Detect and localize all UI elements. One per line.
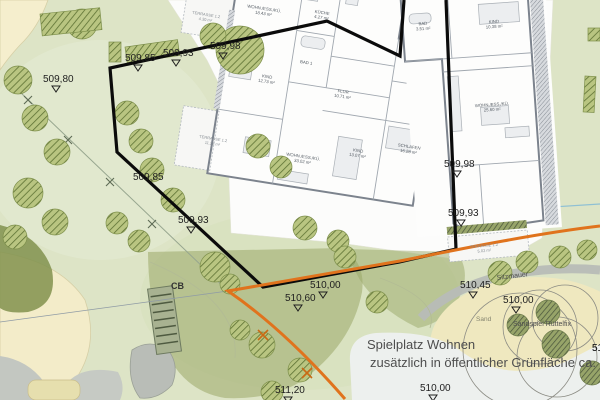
elevation-marker: 509,85 — [133, 172, 164, 183]
svg-text:509,85: 509,85 — [125, 53, 156, 64]
tree-icon — [288, 358, 312, 382]
svg-text:509,85: 509,85 — [133, 172, 164, 183]
site-plan: WOHN./ESS./KÜ.18.43 m²KÜCHE4.27 m²KIND12… — [0, 0, 600, 400]
svg-text:509,80: 509,80 — [43, 74, 74, 85]
svg-text:509,93: 509,93 — [448, 208, 479, 219]
tree-icon — [115, 101, 139, 125]
svg-text:509,93: 509,93 — [163, 48, 194, 59]
tree-icon — [4, 66, 32, 94]
tree-icon — [334, 246, 356, 268]
hedge-icon — [109, 42, 121, 62]
tree-icon — [22, 105, 48, 131]
hedge-icon — [583, 76, 596, 113]
site-plan-canvas: WOHN./ESS./KÜ.18.43 m²KÜCHE4.27 m²KIND12… — [0, 0, 600, 400]
playground-label-line1: Spielplatz Wohnen — [367, 337, 475, 352]
terrace-3 — [447, 220, 530, 262]
playground-label-line2: zusätzlich in öffentlicher Grünfläche ca… — [370, 355, 596, 370]
tree-icon — [161, 188, 185, 212]
floorplan-right-wing — [400, 0, 562, 237]
svg-text:511,20: 511,20 — [275, 385, 305, 396]
tree-icon — [128, 230, 150, 252]
tree-icon — [577, 240, 597, 260]
tree-icon — [129, 129, 153, 153]
svg-text:510,60: 510,60 — [285, 293, 316, 304]
play-structure — [28, 380, 80, 400]
tree-icon — [13, 178, 43, 208]
tree-icon — [42, 209, 68, 235]
sand-play-label: Sandspiel Rüttelfix — [513, 321, 571, 328]
svg-text:510,00: 510,00 — [310, 280, 341, 291]
tree-icon — [246, 134, 270, 158]
tree-icon — [366, 291, 388, 313]
tree-icon — [44, 139, 70, 165]
svg-text:509,98: 509,98 — [444, 159, 475, 170]
svg-text:510,45: 510,45 — [460, 280, 491, 291]
svg-text:510,00: 510,00 — [420, 383, 451, 394]
svg-text:509,93: 509,93 — [178, 215, 209, 226]
tree-icon — [3, 225, 27, 249]
tree-icon — [106, 212, 128, 234]
cb-label: CB — [171, 281, 184, 291]
tree-icon — [293, 216, 317, 240]
hedge-icon — [588, 28, 600, 41]
svg-text:509,98: 509,98 — [210, 41, 241, 52]
tree-icon — [549, 246, 571, 268]
sand-label: Sand — [476, 316, 492, 323]
tree-icon — [230, 320, 250, 340]
tree-icon — [516, 251, 538, 273]
partial-elevation-label: 51 — [592, 343, 600, 354]
tree-icon — [270, 156, 292, 178]
svg-text:510,00: 510,00 — [503, 295, 534, 306]
